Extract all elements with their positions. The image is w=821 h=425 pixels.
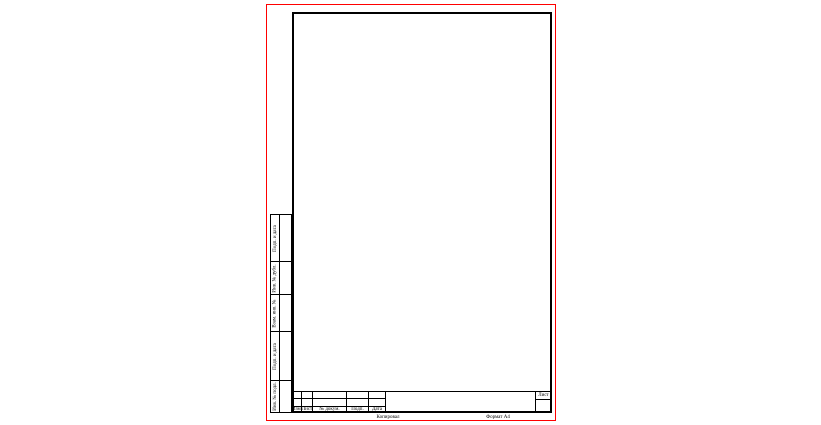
- drawing-sheet-preview: Подп. и дата Инв. № дубл. Взам. инв. № П…: [0, 0, 821, 425]
- margin-label-text: Взам. инв. №: [273, 299, 278, 327]
- margin-value-cell: [279, 380, 292, 413]
- margin-value-cell: [279, 331, 292, 381]
- stamp-col-label-no-dokum: № докум.: [312, 406, 347, 413]
- margin-value-cell: [279, 294, 292, 332]
- margin-label-text: Инв. № дубл.: [273, 264, 278, 292]
- stamp-col-label-data: Дата: [368, 406, 386, 413]
- margin-value-cell: [279, 214, 292, 262]
- margin-label-text: Подп. и дата: [273, 225, 278, 252]
- format-label: Формат А4: [486, 415, 510, 421]
- stamp-sheet-number-cell: [535, 399, 552, 413]
- margin-label-text: Инв. № подл.: [273, 382, 278, 411]
- drawing-frame: [292, 12, 552, 413]
- stamp-col-label-podp: Подп.: [346, 406, 369, 413]
- stamp-designation-cell: [385, 391, 536, 413]
- copied-label: Копировал: [377, 415, 400, 421]
- title-block: Изм. Лист № докум. Подп. Дата Лист: [292, 391, 552, 413]
- margin-label-text: Подп. и дата: [273, 343, 278, 370]
- left-margin-columns: Подп. и дата Инв. № дубл. Взам. инв. № П…: [270, 214, 292, 413]
- sheet-outline: Подп. и дата Инв. № дубл. Взам. инв. № П…: [266, 4, 556, 421]
- margin-value-cell: [279, 261, 292, 295]
